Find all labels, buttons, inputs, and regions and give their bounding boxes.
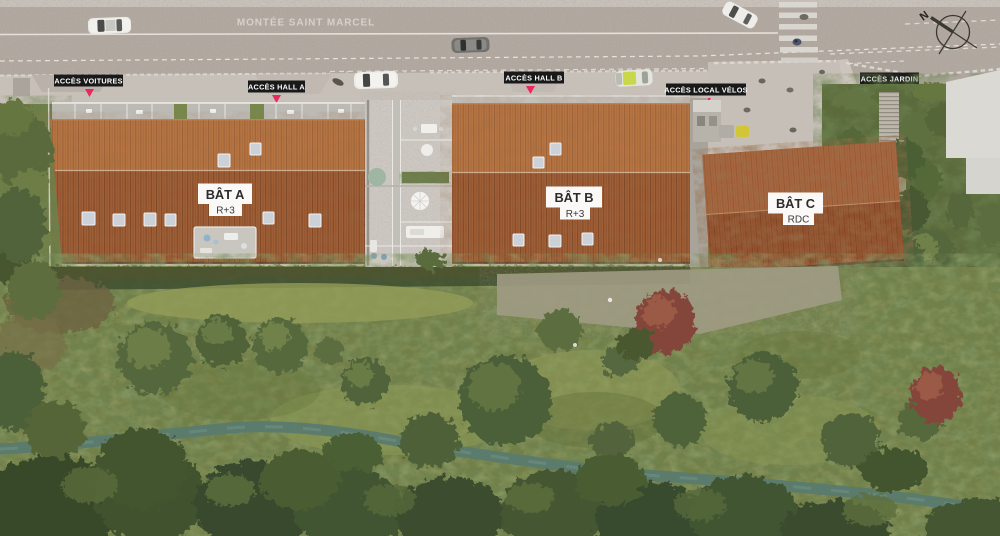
svg-text:ACCÈS HALL A: ACCÈS HALL A: [248, 83, 305, 92]
svg-text:ACCÈS LOCAL VÉLOS: ACCÈS LOCAL VÉLOS: [664, 86, 748, 95]
svg-text:ACCÈS JARDIN: ACCÈS JARDIN: [861, 75, 919, 84]
svg-text:BÂT A: BÂT A: [206, 187, 245, 202]
svg-text:BÂT C: BÂT C: [776, 196, 815, 211]
svg-text:R+3: R+3: [216, 206, 235, 217]
svg-text:ACCÈS HALL B: ACCÈS HALL B: [505, 74, 562, 83]
svg-text:RDC: RDC: [788, 215, 810, 226]
svg-text:ACCÈS VOITURES: ACCÈS VOITURES: [54, 77, 122, 86]
svg-text:MONTÉE SAINT MARCEL: MONTÉE SAINT MARCEL: [237, 16, 375, 29]
svg-text:R+3: R+3: [566, 209, 585, 220]
svg-text:BÂT B: BÂT B: [554, 190, 593, 205]
